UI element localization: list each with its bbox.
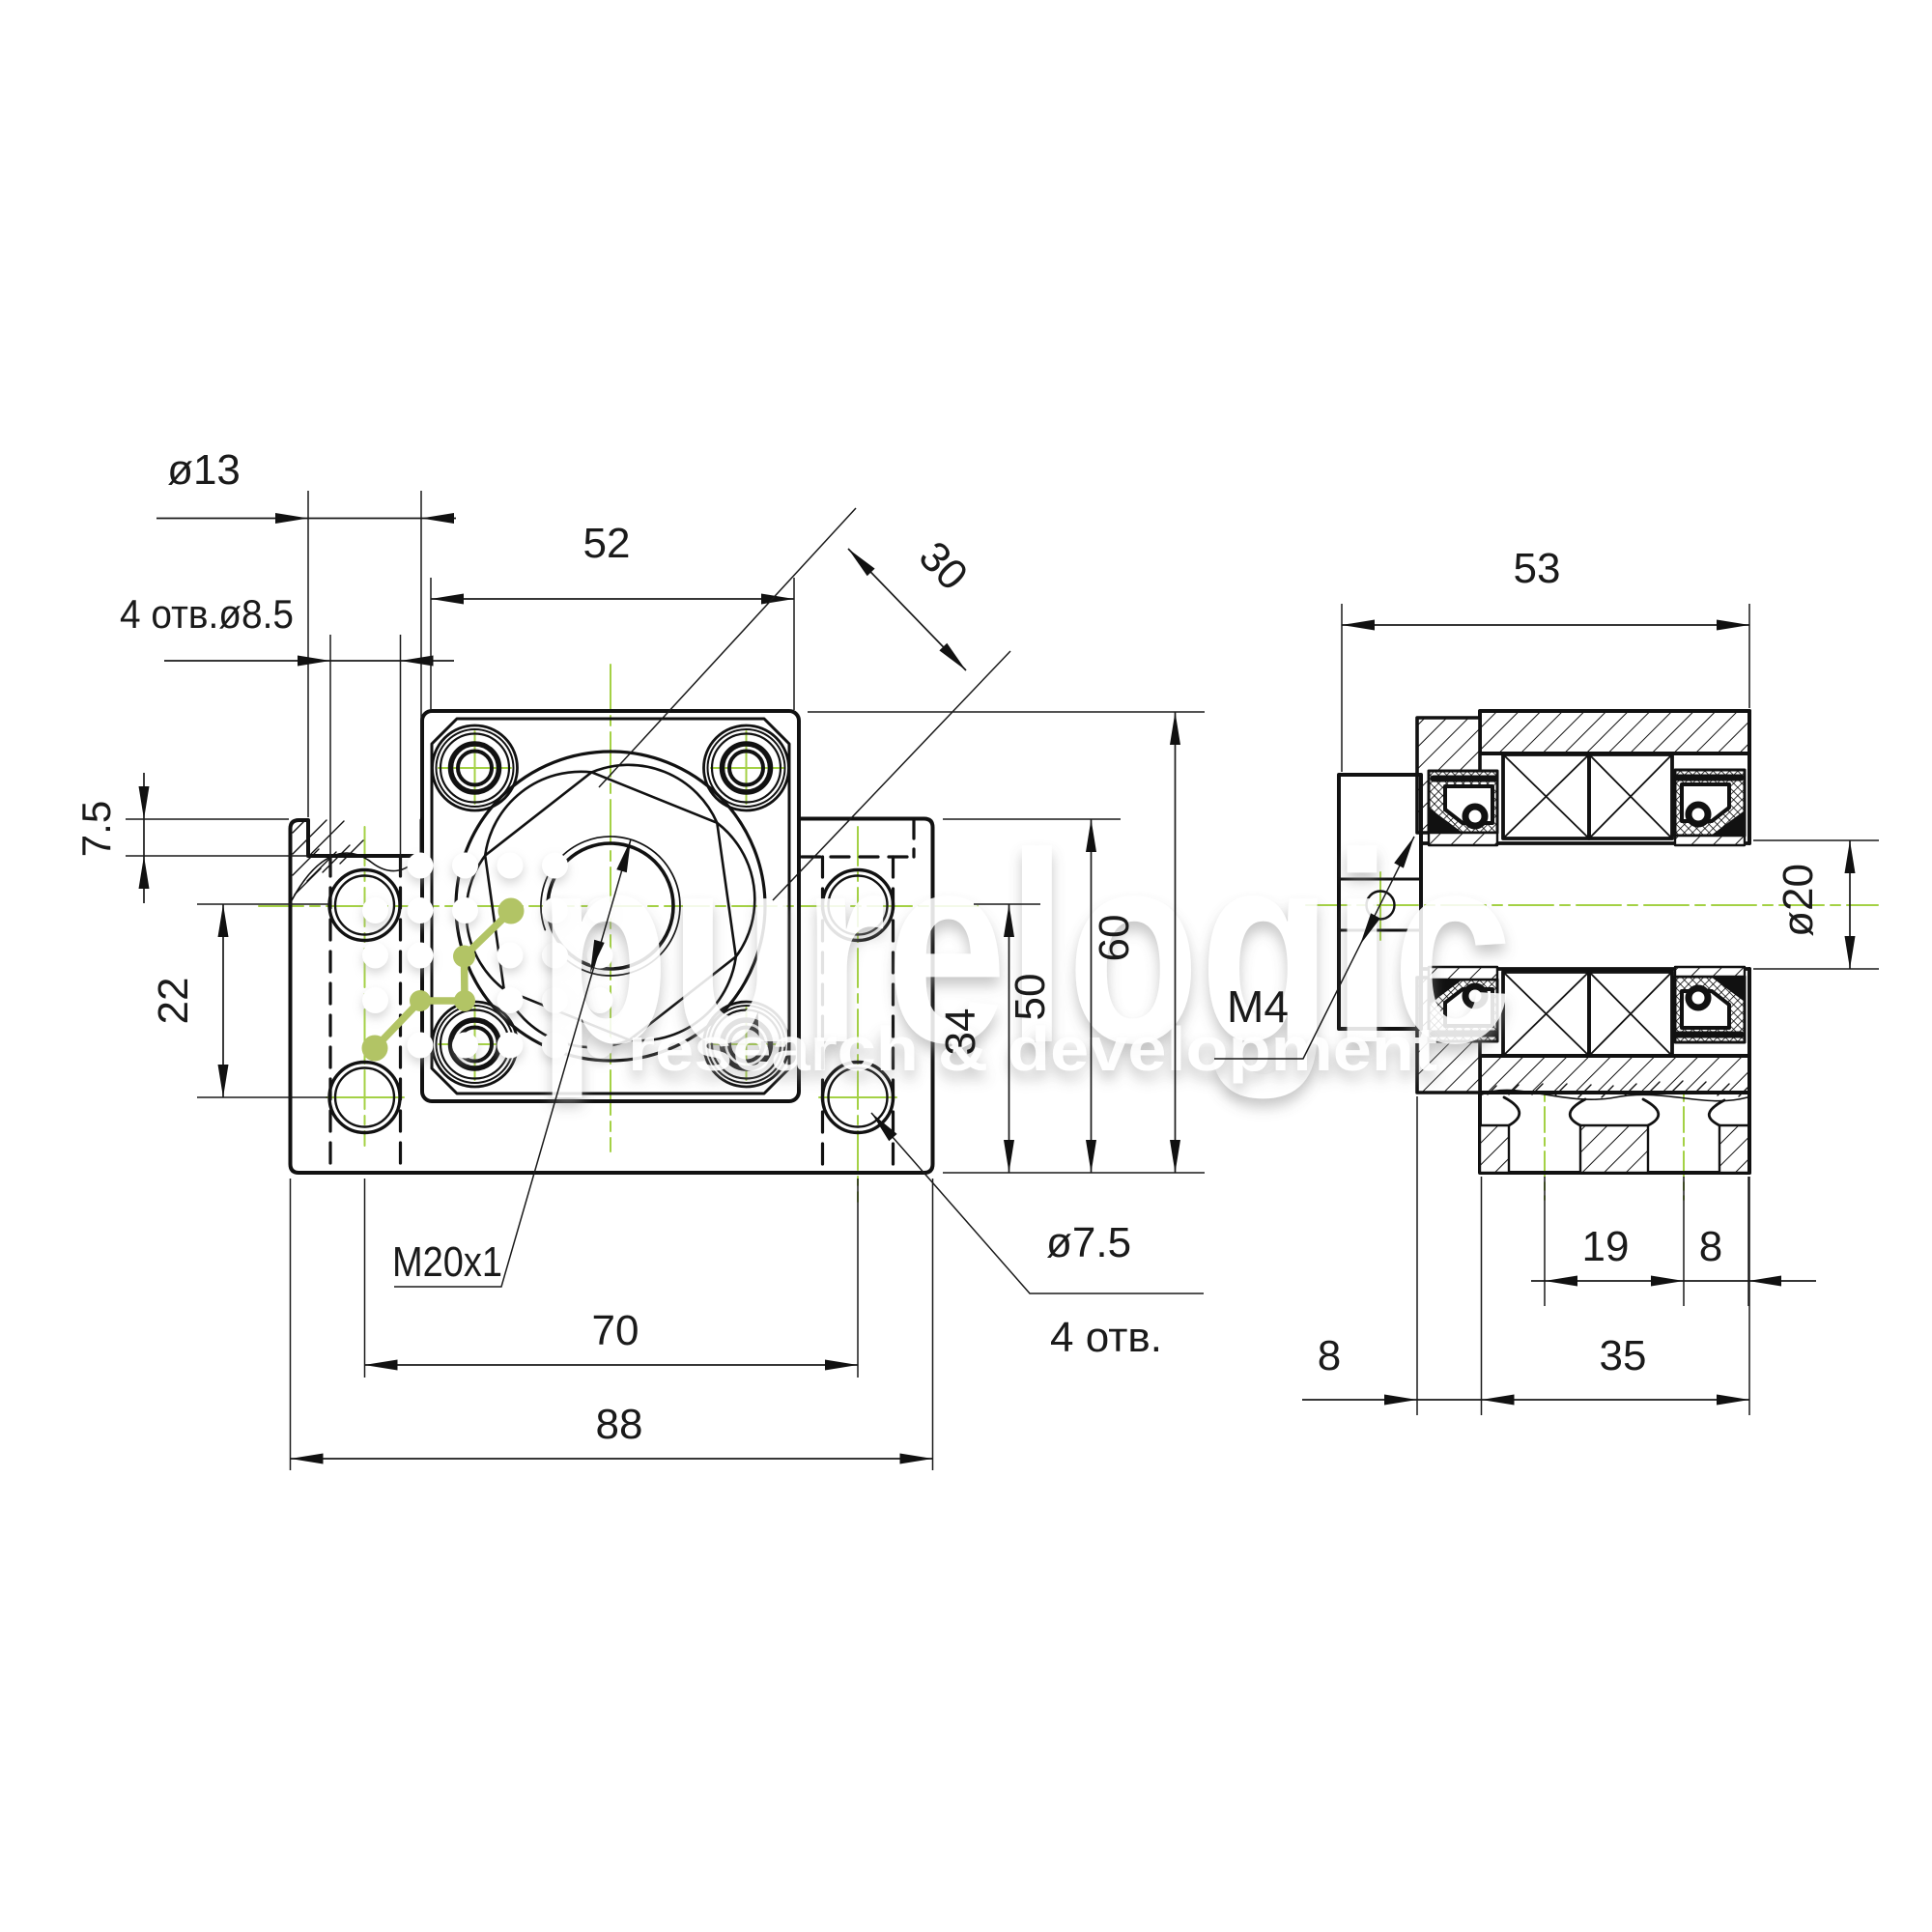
svg-text:4 отв.: 4 отв. [1050,1314,1162,1361]
svg-text:52: 52 [583,520,631,567]
svg-text:60: 60 [1091,915,1138,962]
svg-text:34: 34 [937,1009,984,1056]
svg-text:19: 19 [1582,1223,1630,1270]
svg-text:53: 53 [1514,545,1561,592]
svg-text:8: 8 [1318,1332,1341,1379]
svg-text:22: 22 [150,978,197,1025]
svg-text:ø13: ø13 [167,446,241,494]
svg-text:35: 35 [1600,1332,1647,1379]
svg-text:ø20: ø20 [1775,864,1822,937]
svg-text:50: 50 [1007,974,1054,1021]
svg-text:M20x1: M20x1 [392,1238,502,1286]
svg-text:88: 88 [596,1401,643,1448]
svg-text:M4: M4 [1227,981,1289,1032]
svg-text:8: 8 [1699,1223,1722,1270]
svg-text:7.5: 7.5 [73,801,119,857]
svg-text:ø7.5: ø7.5 [1046,1219,1131,1266]
svg-text:4 отв.ø8.5: 4 отв.ø8.5 [120,591,294,637]
svg-text:70: 70 [592,1307,639,1354]
svg-text:research & development: research & development [628,1014,1437,1084]
